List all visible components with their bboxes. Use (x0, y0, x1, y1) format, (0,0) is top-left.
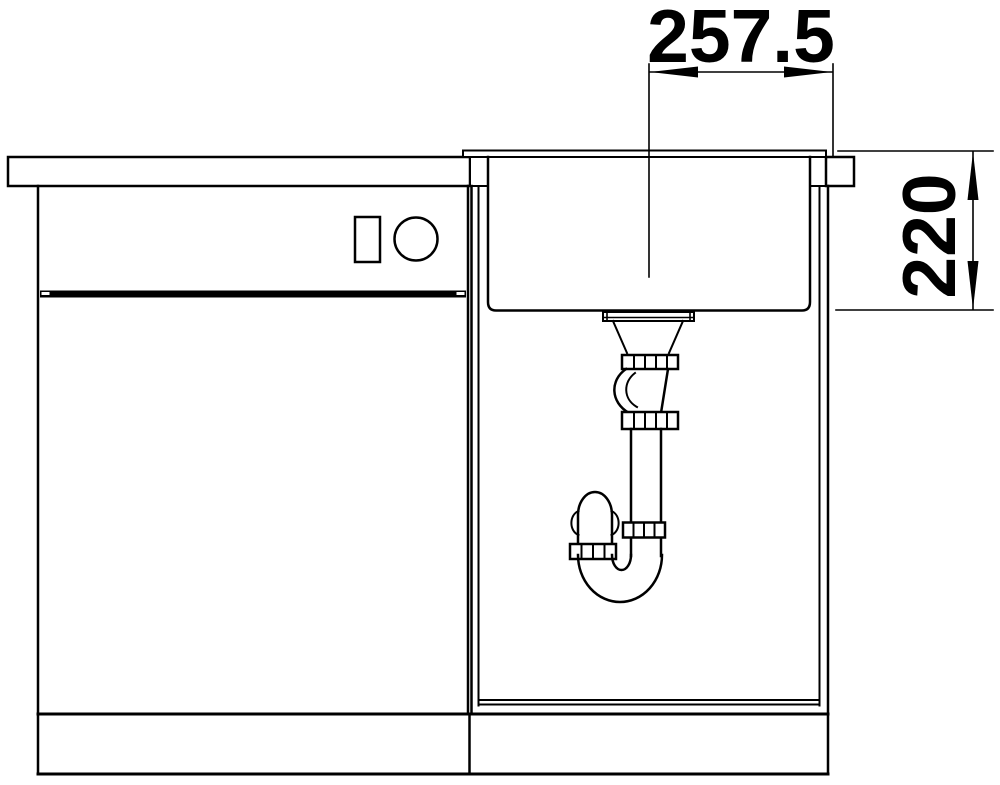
strainer-cup (613, 321, 683, 353)
dim-value-vertical: 220 (887, 173, 971, 298)
countertop-right-section (826, 157, 854, 186)
drain-assembly (570, 312, 694, 602)
sink-cabinet-inner-bottom (479, 700, 820, 705)
left-cabinet (38, 186, 468, 774)
door-gap-bar (40, 291, 466, 298)
countertop (8, 157, 854, 186)
technical-drawing-sink-cabinet-front-view: 257.5 220 (0, 0, 1000, 785)
strainer-flange (603, 312, 694, 321)
plinth (38, 714, 828, 774)
dimension-horizontal: 257.5 (647, 0, 835, 277)
drain-elbow (614, 369, 668, 413)
dimension-vertical: 220 (836, 151, 993, 310)
dim-value-horizontal: 257.5 (647, 0, 835, 78)
sink-rim-flange (463, 151, 826, 158)
drain-nut-1 (622, 355, 678, 369)
countertop-right-rim-cutout (810, 157, 826, 186)
control-panel-knob (395, 218, 438, 261)
countertop-left-section (8, 157, 470, 186)
control-panel-display (355, 217, 380, 262)
countertop-left-rim-cutout (470, 157, 488, 186)
drain-nut-2 (622, 412, 678, 429)
trap-u-bend (578, 555, 662, 602)
drain-nut-3 (623, 523, 665, 538)
